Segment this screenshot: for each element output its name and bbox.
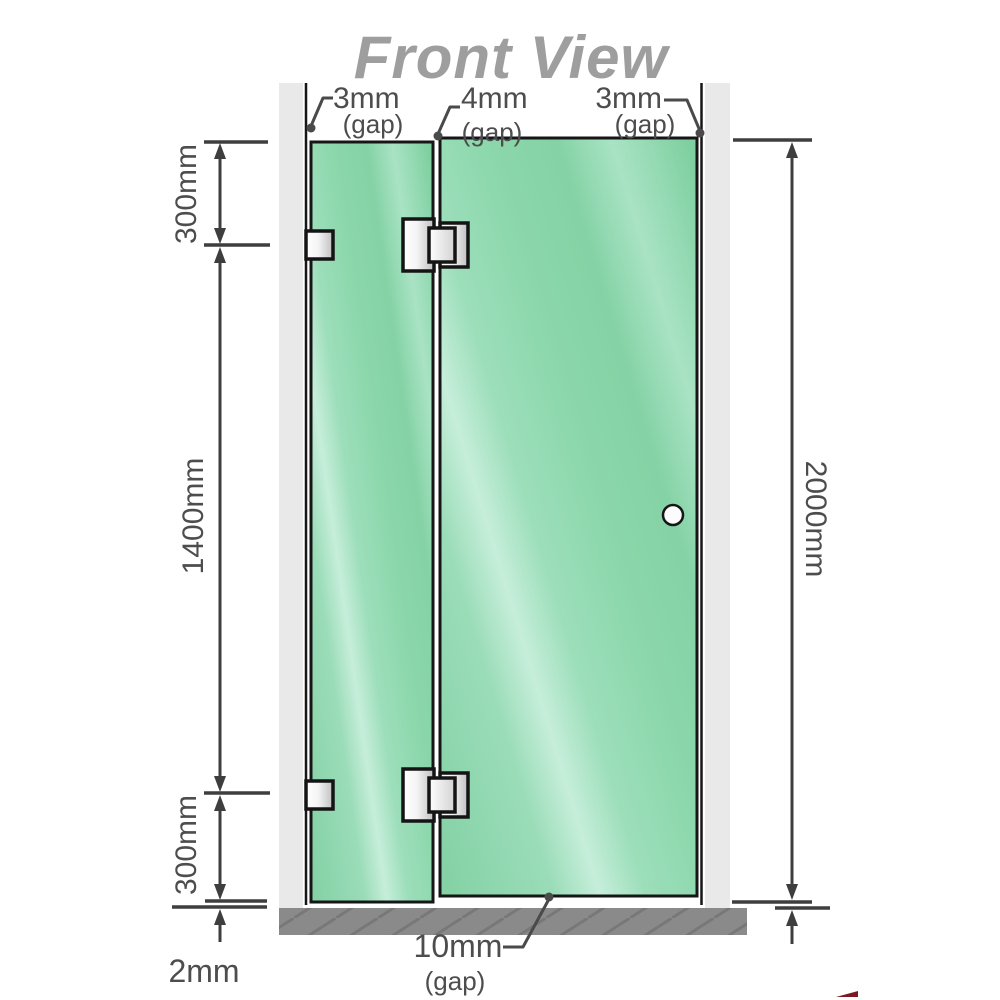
wall-bracket-bottom <box>306 781 333 809</box>
door-glass-panel <box>440 138 697 896</box>
dim-floor-clearance-label: 2mm <box>168 953 239 989</box>
front-view-diagram: Front View <box>0 0 1000 1000</box>
gap-top-right-note: (gap) <box>615 109 676 139</box>
watermark-red-sliver <box>836 991 858 997</box>
diagram-canvas: Front View <box>0 0 1000 1000</box>
leader-dot <box>545 893 554 902</box>
leader-dot <box>696 129 705 138</box>
gap-top-center-value: 4mm <box>461 82 528 115</box>
gap-bottom-note: (gap) <box>425 966 486 996</box>
dim-left-middle-label: 1400mm <box>177 458 210 575</box>
dim-left-top-label: 300mm <box>170 144 203 244</box>
hinge-top <box>403 219 468 271</box>
floor <box>279 908 747 935</box>
right-dimension-chain: 2000mm <box>732 140 832 944</box>
door-knob <box>663 505 683 525</box>
wall-bracket-top <box>306 231 333 259</box>
leader-dot <box>434 132 443 141</box>
gap-top-left-note: (gap) <box>343 109 404 139</box>
hinge-top-bridge <box>429 228 455 262</box>
callout-gap-top-right: 3mm (gap) <box>595 82 704 139</box>
callout-gap-top-left: 3mm (gap) <box>307 82 404 139</box>
gap-top-center-note: (gap) <box>462 117 523 147</box>
left-dimension-chain: 300mm 1400mm 300mm 2mm <box>168 142 270 989</box>
gap-bottom-value: 10mm <box>414 928 503 964</box>
hinge-bottom <box>403 769 468 821</box>
dim-overall-height-label: 2000mm <box>799 461 832 578</box>
dim-left-bottom-label: 300mm <box>170 795 203 895</box>
right-wall <box>702 83 731 908</box>
left-wall-surface <box>279 83 303 908</box>
left-wall <box>279 83 306 908</box>
diagram-title: Front View <box>354 24 671 91</box>
leader-dot <box>307 124 316 133</box>
right-wall-surface <box>705 83 730 908</box>
hinge-bottom-bridge <box>429 778 455 812</box>
